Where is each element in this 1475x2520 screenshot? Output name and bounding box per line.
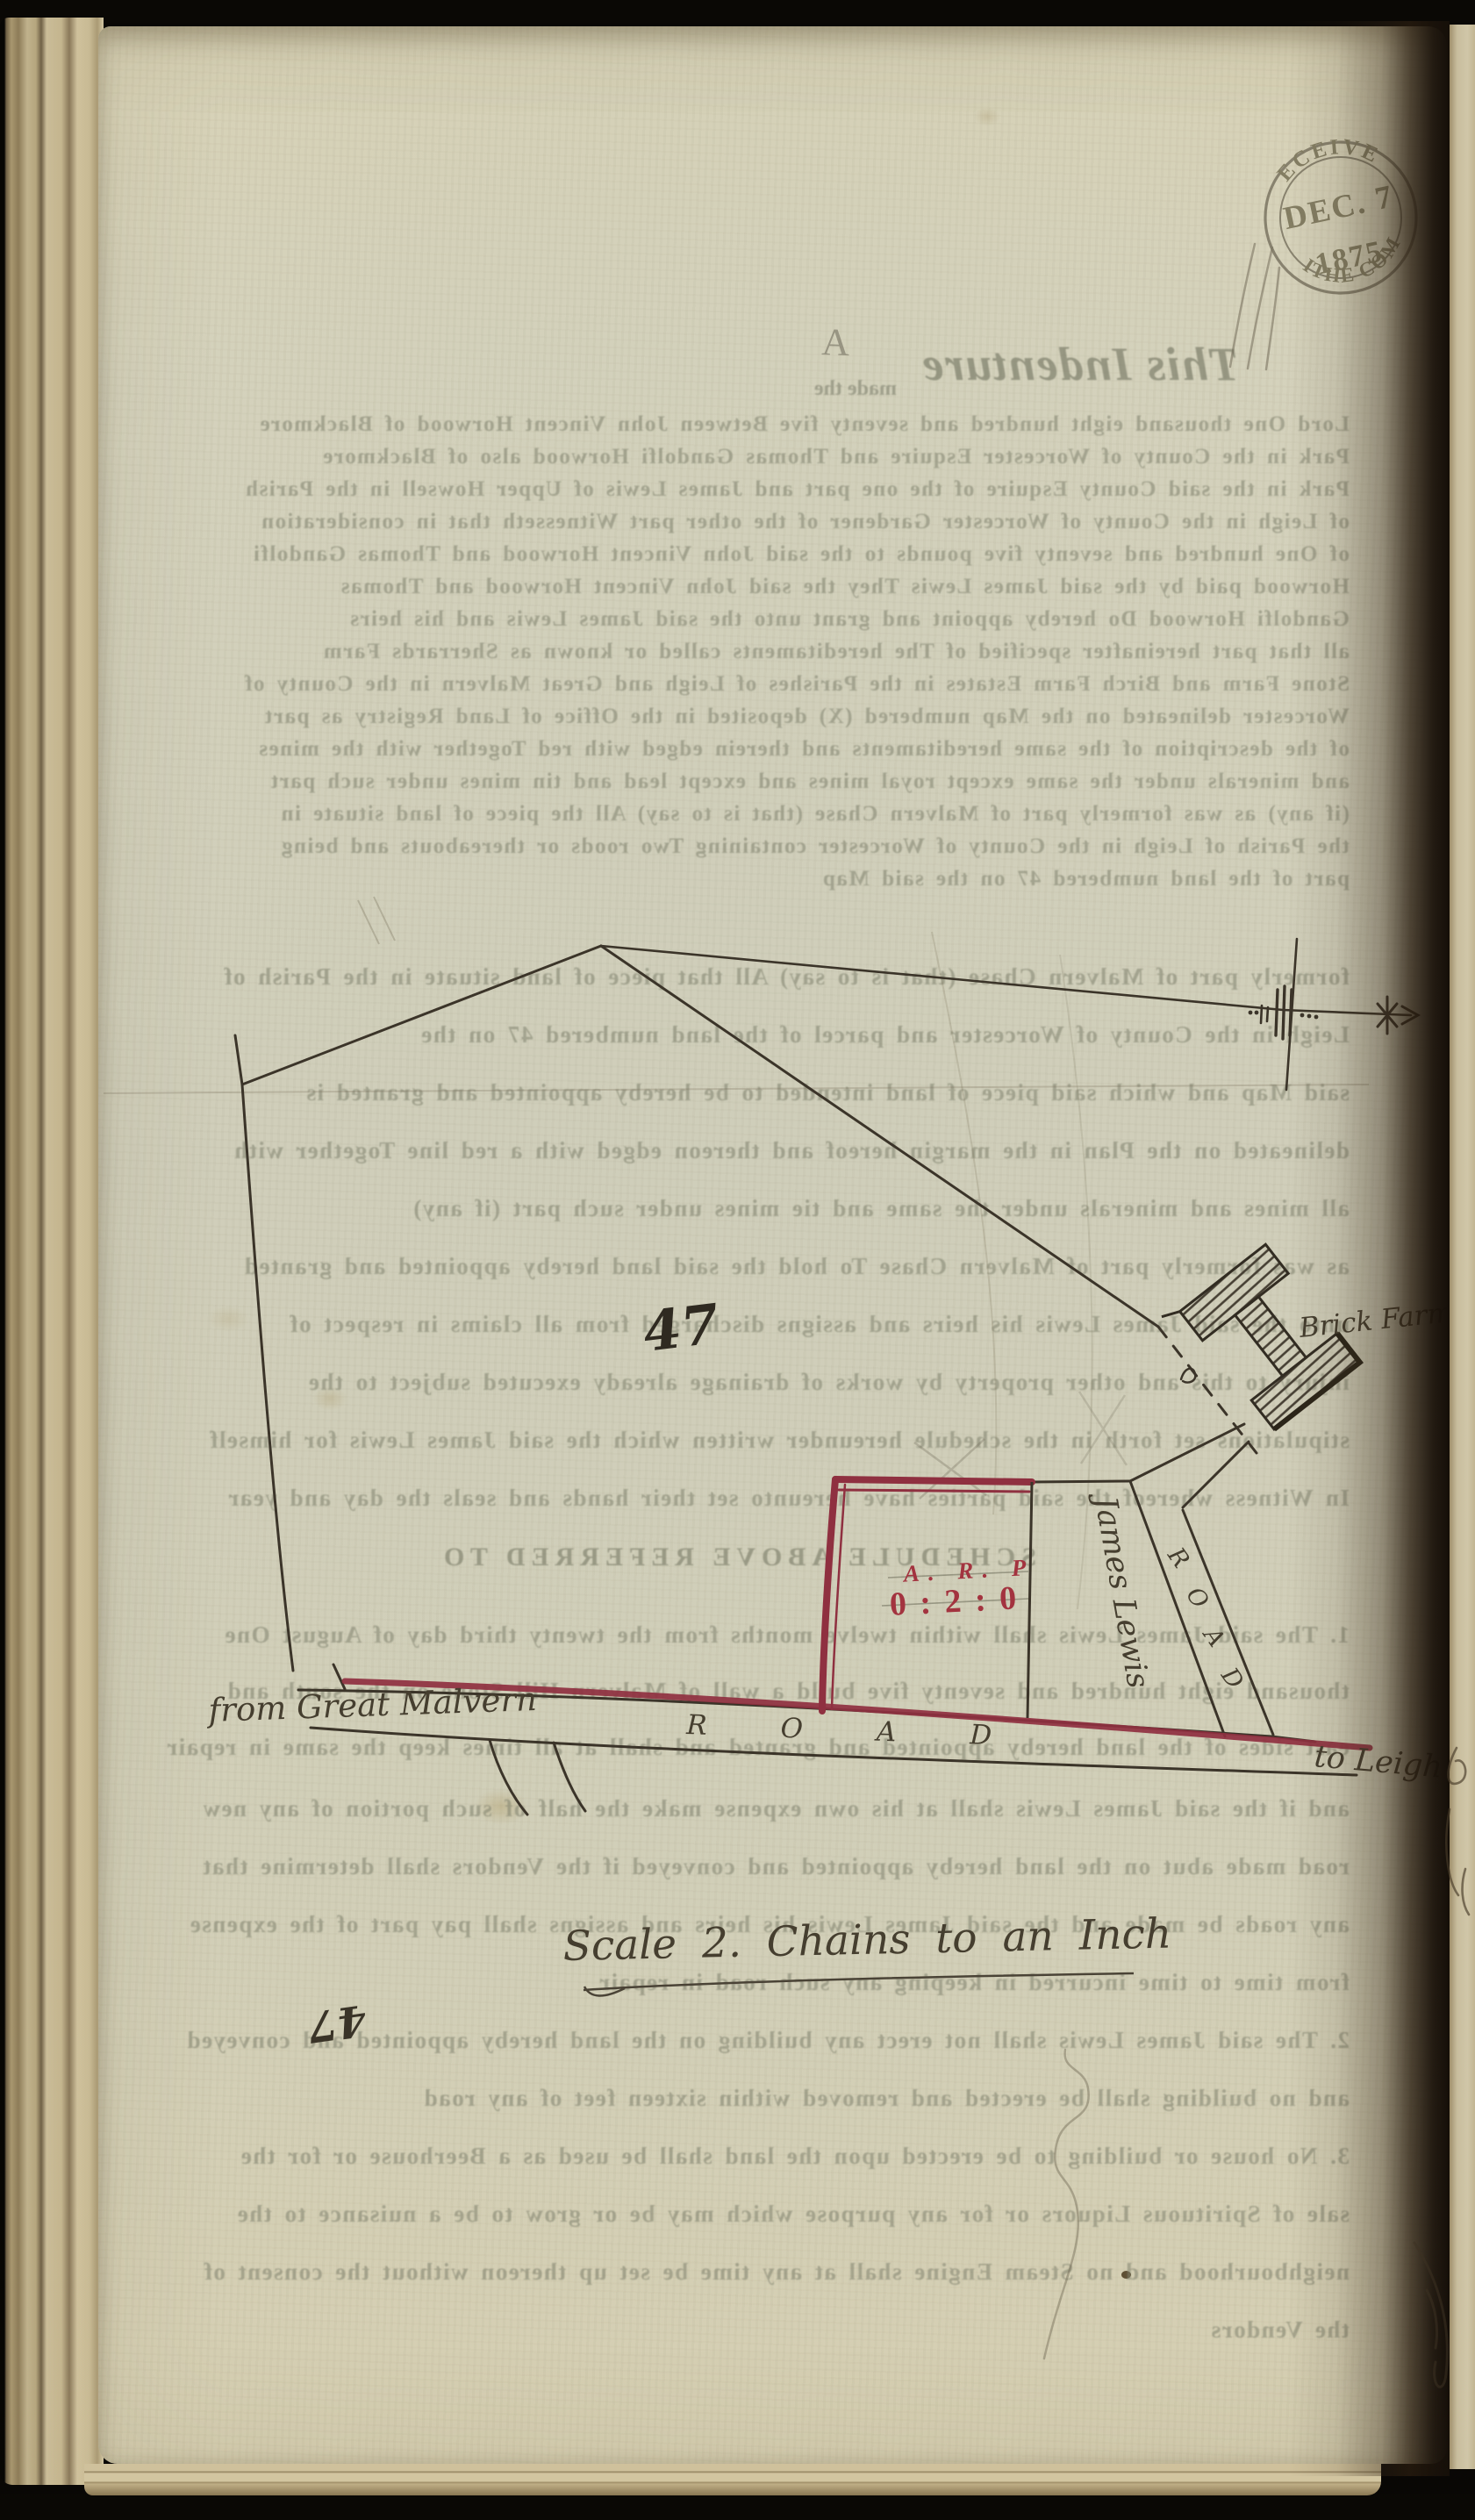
marginal-handwriting [1446,1748,1469,1915]
margin-handwriting-svg [0,0,1475,2520]
marginal-signature [1414,2243,1447,2387]
